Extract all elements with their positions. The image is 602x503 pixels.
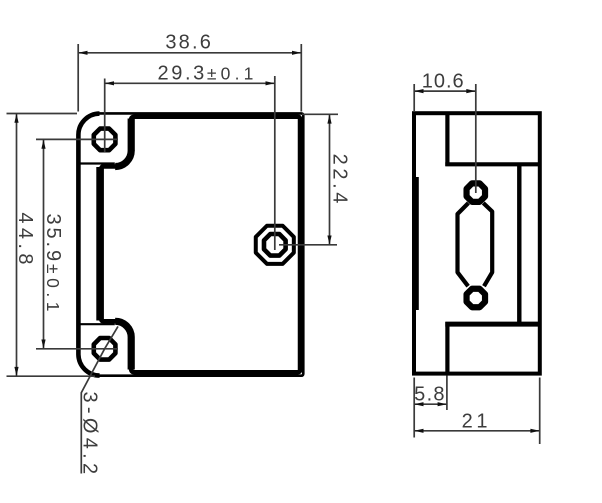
svg-text:22.4: 22.4 (329, 154, 351, 207)
svg-text:5.8: 5.8 (414, 384, 446, 406)
svg-text:10.6: 10.6 (422, 71, 465, 93)
svg-text:38.6: 38.6 (165, 31, 213, 53)
svg-text:35.9±0.1: 35.9±0.1 (42, 214, 64, 316)
svg-text:44.8: 44.8 (14, 212, 36, 269)
svg-text:3-Ø4.2: 3-Ø4.2 (79, 392, 101, 479)
svg-text:21: 21 (462, 411, 491, 433)
svg-text:29.3±0.1: 29.3±0.1 (158, 62, 258, 84)
